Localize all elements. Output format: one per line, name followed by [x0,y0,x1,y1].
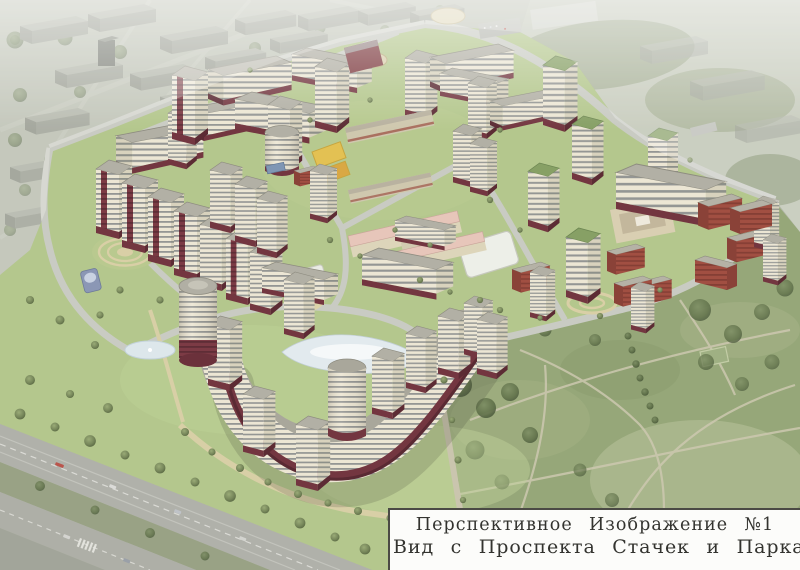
architectural-rendering: Перспективное Изображение №1 Вид с Просп… [0,0,800,570]
scene-svg [0,0,800,570]
caption-box: Перспективное Изображение №1 Вид с Просп… [388,508,800,570]
cylinder-tower [179,278,217,368]
caption-subtitle: Вид с Проспекта Стачек и Парка “Александ… [390,536,800,558]
small-pond [125,341,175,359]
round-section [328,359,366,441]
caption-title: Перспективное Изображение №1 [390,515,800,535]
